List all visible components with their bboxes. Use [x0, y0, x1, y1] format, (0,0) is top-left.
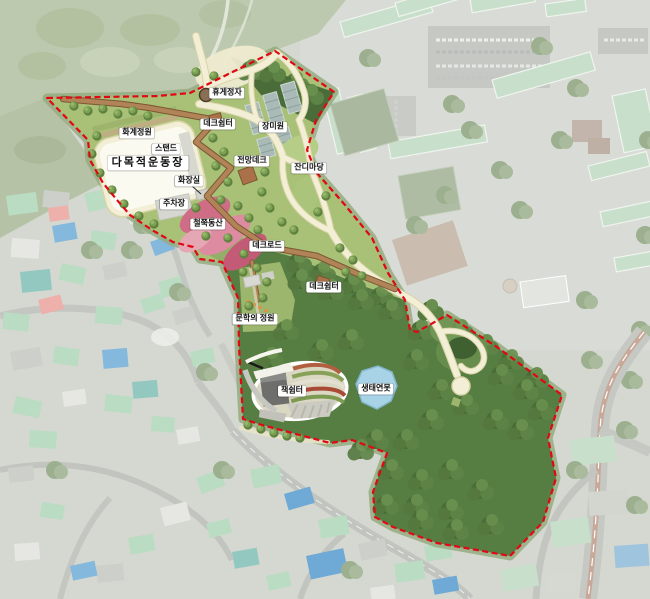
label-rest-pavilion: 휴게정자 [209, 88, 244, 99]
map-canvas [0, 0, 650, 599]
label-azalea-hill: 철쭉동산 [190, 219, 225, 230]
label-stand: 스탠드 [152, 144, 180, 155]
label-multipurpose-field: 다목적운동장 [108, 156, 189, 171]
label-parking: 주차장 [160, 199, 188, 210]
label-restroom: 화장실 [175, 176, 203, 187]
label-observation-deck: 전망데크 [234, 156, 269, 167]
label-deck-road: 데크로드 [249, 241, 284, 252]
label-deck-shelter-1: 데크쉼터 [200, 119, 235, 130]
label-eco-pond: 생태연못 [358, 384, 393, 395]
label-book-shelter: 책쉼터 [278, 386, 306, 397]
label-deck-shelter-2: 데크쉼터 [306, 282, 341, 293]
label-literature-garden: 문학의 정원 [232, 314, 277, 325]
label-rose-garden: 장미원 [259, 122, 287, 133]
park-masterplan-map: 휴게정자 데크쉼터 장미원 화계정원 스탠드 다목적운동장 전망데크 잔디마당 … [0, 0, 650, 599]
label-flower-garden: 화계정원 [119, 128, 154, 139]
label-lawn-plaza: 잔디마당 [291, 163, 326, 174]
